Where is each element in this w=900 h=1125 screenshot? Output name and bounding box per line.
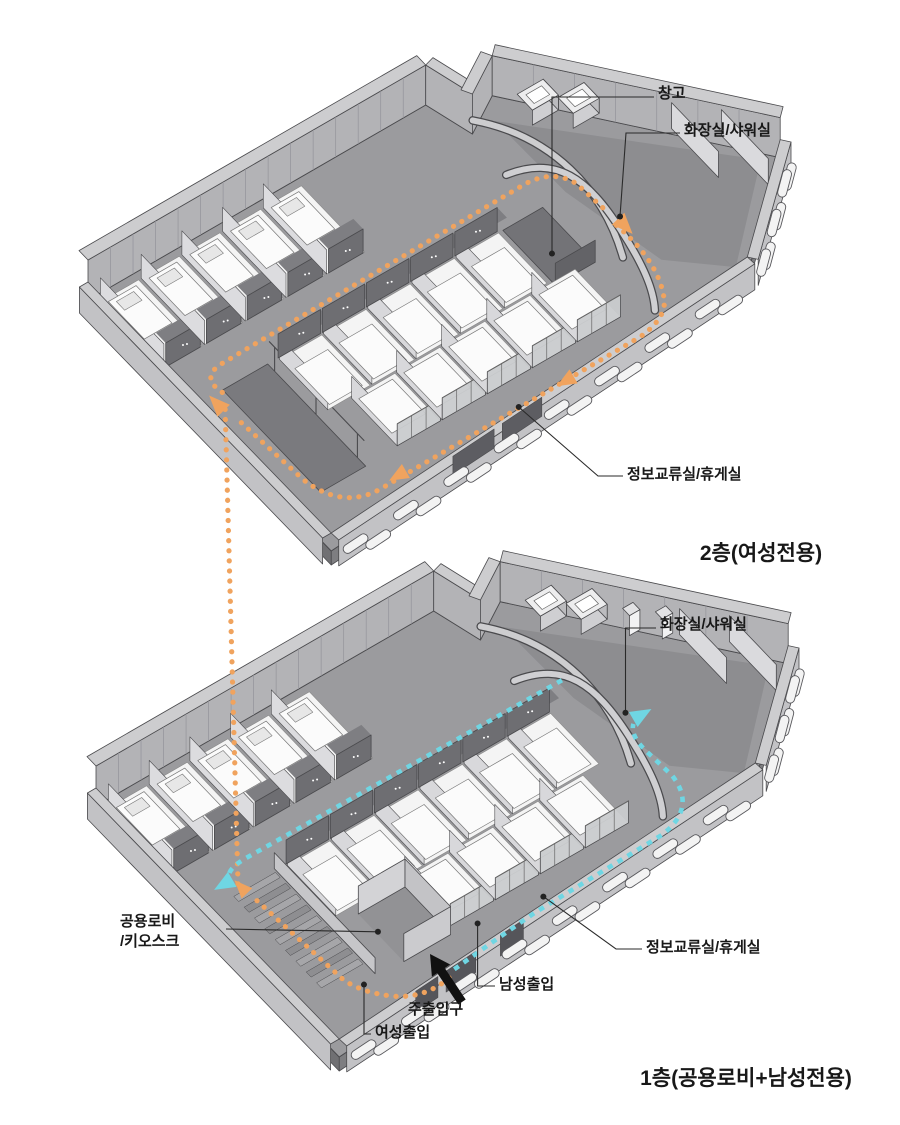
label-bathroom-1f: 화장실/샤워실: [660, 615, 747, 635]
label-lobby-line1: 공용로비: [120, 913, 175, 930]
label-men-entrance: 남성출입: [499, 975, 554, 995]
label-lounge-1f: 정보교류실/휴게실: [646, 938, 761, 958]
label-lobby-line2: /키오스크: [120, 933, 179, 950]
title-floor-1: 1층(공용로비+남성전용): [600, 1062, 892, 1092]
label-lounge-2f: 정보교류실/휴게실: [627, 465, 742, 485]
title-floor-2: 2층(여성전용): [630, 537, 892, 567]
label-lobby-1f: 공용로비 /키오스크: [120, 912, 179, 953]
axonometric-capsule-hotel-diagram: 창고 화장실/샤워실 정보교류실/휴게실 2층(여성전용) 화장실/샤워실 공용…: [0, 0, 900, 1125]
label-bathroom-2f: 화장실/샤워실: [684, 121, 771, 141]
label-storage-2f: 창고: [658, 84, 686, 104]
label-women-entrance: 여성출입: [375, 1023, 430, 1043]
label-main-entrance: 주출입구: [408, 1000, 463, 1020]
